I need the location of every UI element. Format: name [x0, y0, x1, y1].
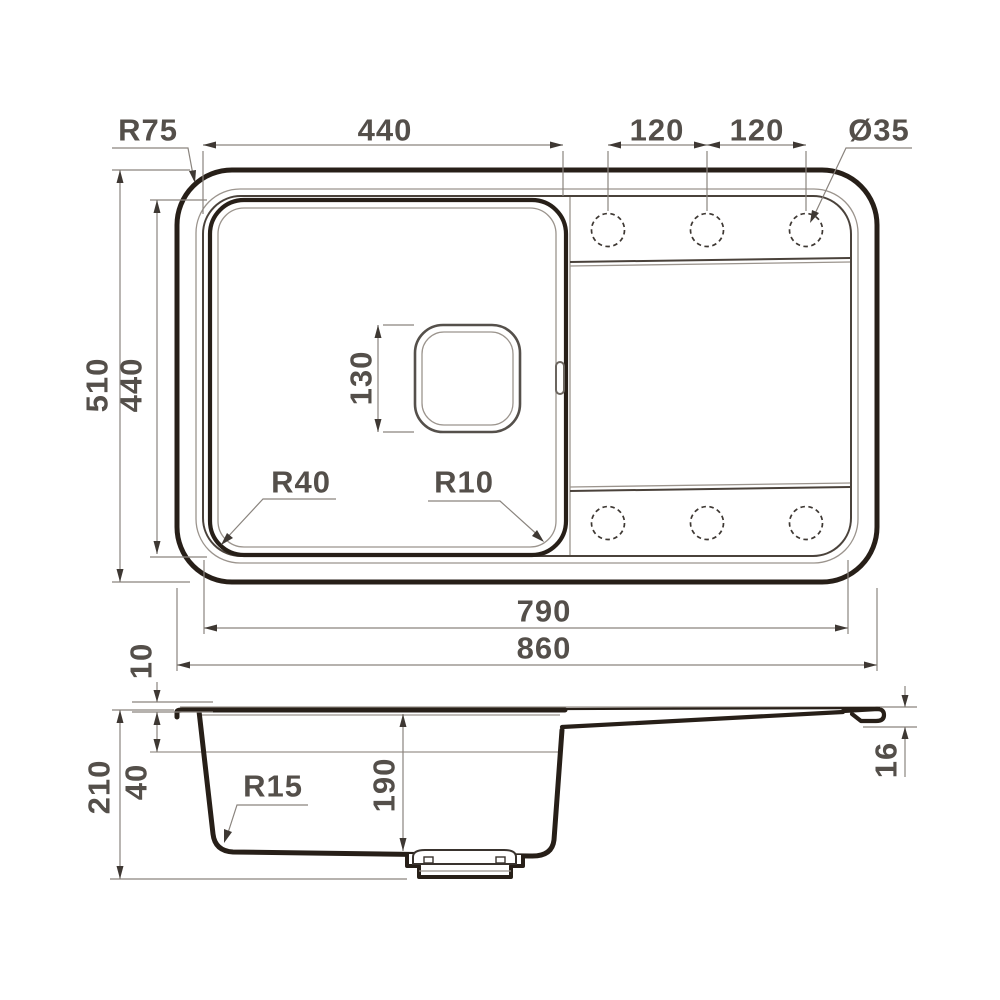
tap-hole-bottom-2: [691, 507, 724, 540]
dim-bowl-section-depth-label: 190: [367, 758, 402, 813]
sink-rim-outer-line: [196, 189, 858, 563]
tap-hole-bottom-3: [790, 507, 823, 540]
dim-bowl-section-depth: 190: [367, 714, 407, 851]
dim-edge-depth-label: 40: [119, 764, 154, 800]
dim-overall-depth-label: 510: [80, 358, 115, 413]
dim-bowl-corner-radius: R40: [221, 465, 336, 546]
tap-hole-top-2: [691, 214, 724, 247]
overflow-notch: [556, 362, 564, 394]
dim-bowl-depth: 440: [114, 200, 208, 557]
rim-surface-left: [177, 710, 565, 717]
dim-outer-corner-radius-label: R75: [118, 113, 178, 148]
sink-dimension-drawing: 440 120 120 R75 Ø35: [0, 0, 1000, 1000]
dim-bottom-radius-label: R15: [243, 769, 303, 804]
drain-outer: [415, 325, 520, 432]
dim-outer-corner-radius: R75: [112, 113, 196, 184]
drain-square: [415, 325, 520, 432]
drainboard: [570, 197, 850, 555]
dim-overall-height-label: 210: [82, 760, 117, 815]
tap-hole-top-1: [592, 214, 625, 247]
dim-bottom-radius: R15: [224, 769, 308, 844]
dim-drain-size: 130: [344, 325, 415, 432]
dim-tap-spacing-2-label: 120: [730, 113, 785, 148]
drainboard-section-surface: [562, 712, 843, 727]
dim-rim-height-label: 10: [124, 643, 159, 679]
dim-bowl-depth-label: 440: [114, 358, 149, 413]
tap-hole-bottom-1: [592, 507, 625, 540]
dim-bowl-width-label: 440: [358, 113, 413, 148]
dim-inner-length: 790: [204, 560, 848, 634]
dim-drain-size-label: 130: [344, 351, 379, 406]
right-edge-lip: [843, 709, 884, 721]
dim-edge-thickness: 16: [863, 686, 917, 778]
dim-bowl-inner-radius-label: R10: [434, 465, 494, 500]
dim-edge-depth: 40: [119, 712, 161, 800]
sink-outer-edge: [177, 170, 877, 582]
drainboard-bottom-groove-dark: [570, 487, 850, 491]
strainer-foot-left: [424, 857, 433, 863]
drainboard-bottom-groove-light: [570, 483, 850, 487]
dim-bowl-corner-radius-label: R40: [271, 465, 331, 500]
dim-rim-height: 10: [124, 643, 214, 712]
strainer-foot-right: [496, 857, 505, 863]
drain-fitting: [407, 850, 523, 877]
drainboard-top-groove-light: [570, 262, 850, 266]
drainboard-top-groove-dark: [570, 258, 850, 262]
dim-tap-spacing-1-label: 120: [630, 113, 685, 148]
top-view: [177, 170, 877, 582]
dim-overall-length-label: 860: [517, 631, 572, 666]
tap-hole-top-3: [790, 214, 823, 247]
rim-surface-right: [565, 708, 880, 709]
sink-rim-inner-line: [203, 196, 851, 556]
drawing-canvas: 440 120 120 R75 Ø35: [0, 0, 1000, 1000]
dim-tap-hole-diameter-label: Ø35: [848, 113, 910, 148]
dim-bowl-inner-radius: R10: [428, 465, 544, 543]
dim-edge-thickness-label: 16: [869, 742, 904, 778]
dim-inner-length-label: 790: [517, 594, 572, 629]
